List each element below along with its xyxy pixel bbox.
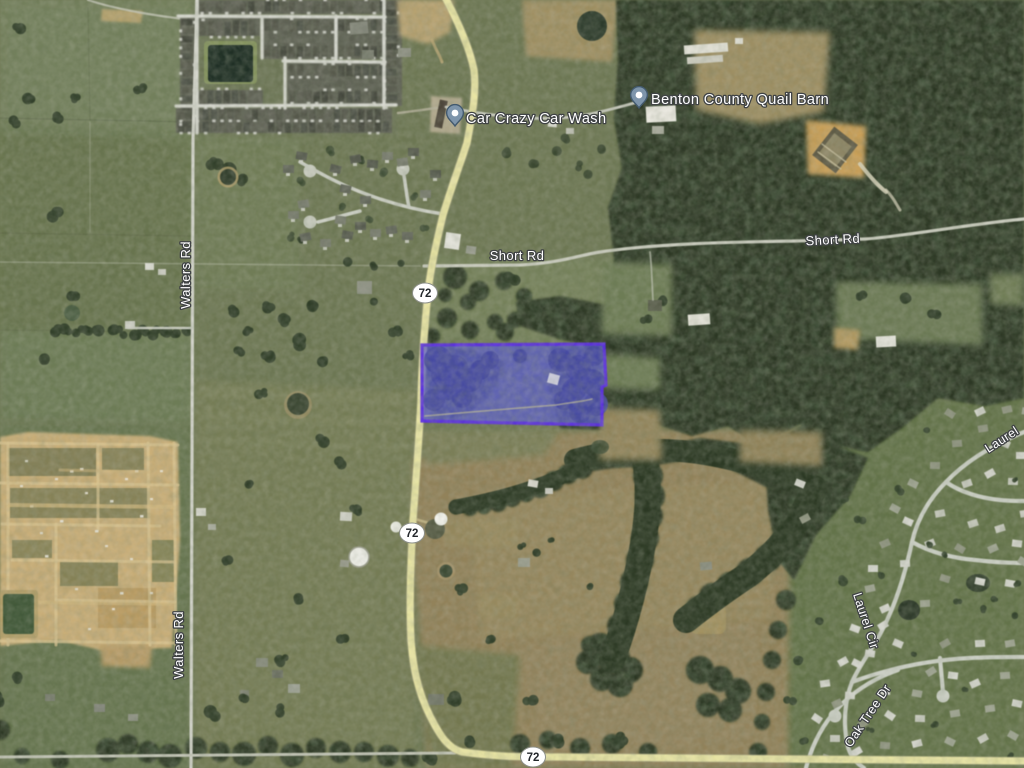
svg-text:Short Rd: Short Rd <box>490 248 545 263</box>
svg-text:Benton County Quail Barn: Benton County Quail Barn <box>651 92 829 108</box>
svg-text:Walters Rd: Walters Rd <box>171 611 186 679</box>
svg-text:Walters Rd: Walters Rd <box>178 241 193 309</box>
svg-text:72: 72 <box>419 288 432 300</box>
svg-text:Car Crazy Car Wash: Car Crazy Car Wash <box>466 111 606 127</box>
svg-text:72: 72 <box>406 528 419 540</box>
svg-text:Short Rd: Short Rd <box>805 231 860 249</box>
svg-text:72: 72 <box>527 752 540 764</box>
